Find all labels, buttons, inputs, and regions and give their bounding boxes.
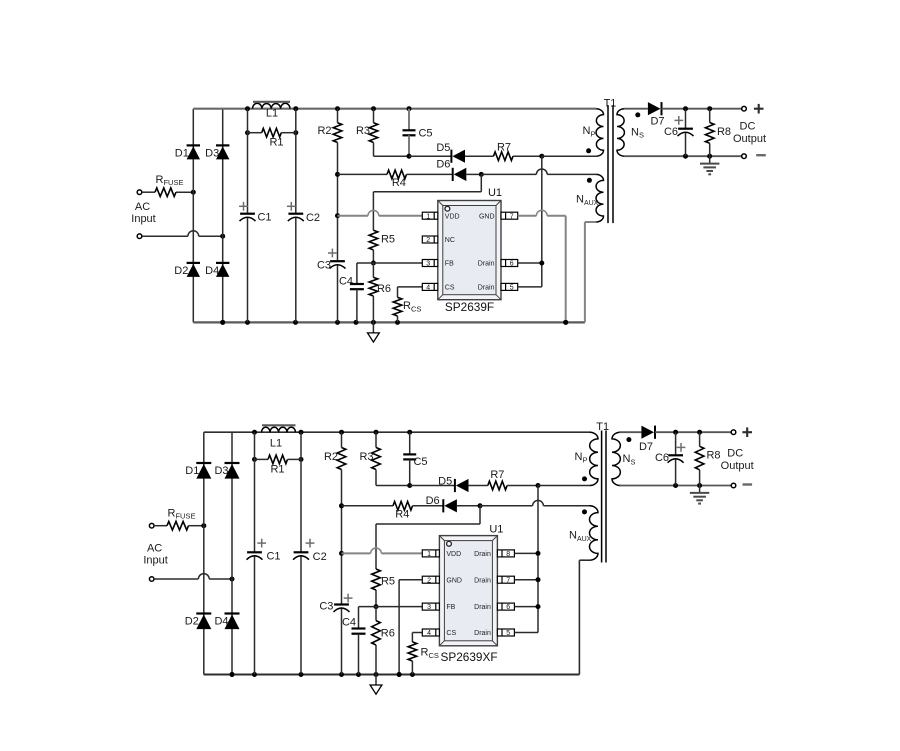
svg-text:1: 1 — [427, 551, 431, 558]
svg-text:R6: R6 — [377, 283, 391, 295]
svg-text:Drain: Drain — [474, 604, 491, 611]
svg-text:8: 8 — [506, 551, 510, 558]
svg-text:Drain: Drain — [474, 551, 491, 558]
svg-text:D4: D4 — [214, 616, 228, 628]
svg-text:R3: R3 — [356, 125, 370, 137]
svg-text:CS: CS — [446, 630, 456, 637]
svg-text:R8: R8 — [717, 126, 731, 138]
svg-text:D3: D3 — [205, 147, 219, 159]
svg-text:U1: U1 — [488, 187, 502, 199]
svg-text:5: 5 — [510, 285, 514, 292]
svg-text:R7: R7 — [490, 469, 504, 481]
svg-text:4: 4 — [427, 630, 431, 637]
svg-text:Drain: Drain — [474, 630, 491, 637]
svg-text:C5: C5 — [418, 128, 432, 140]
svg-text:C4: C4 — [342, 616, 356, 628]
svg-text:AC: AC — [135, 201, 150, 213]
svg-text:3: 3 — [427, 604, 431, 611]
svg-text:R5: R5 — [381, 234, 395, 246]
svg-text:6: 6 — [506, 604, 510, 611]
svg-text:Drain: Drain — [478, 285, 495, 292]
svg-text:R2: R2 — [324, 451, 338, 463]
svg-text:DC: DC — [740, 120, 756, 132]
svg-text:2: 2 — [426, 237, 430, 244]
svg-text:Output: Output — [721, 460, 754, 472]
svg-text:5: 5 — [506, 630, 510, 637]
svg-text:D7: D7 — [639, 441, 653, 453]
svg-text:R5: R5 — [381, 576, 395, 588]
svg-text:R3: R3 — [359, 451, 373, 463]
svg-text:R1: R1 — [269, 136, 283, 148]
svg-text:NC: NC — [445, 237, 455, 244]
svg-text:DC: DC — [727, 447, 743, 459]
svg-text:7: 7 — [506, 577, 510, 584]
svg-text:SP2639F: SP2639F — [445, 300, 494, 314]
svg-text:R2: R2 — [317, 125, 331, 137]
svg-text:1: 1 — [426, 213, 430, 220]
svg-text:D7: D7 — [650, 115, 664, 127]
svg-text:GND: GND — [446, 577, 462, 584]
svg-text:D3: D3 — [214, 465, 228, 477]
svg-text:Input: Input — [143, 555, 167, 567]
svg-text:T1: T1 — [596, 421, 609, 433]
svg-text:R4: R4 — [395, 508, 409, 520]
svg-text:AC: AC — [147, 543, 162, 555]
svg-text:7: 7 — [510, 213, 514, 220]
svg-text:3: 3 — [426, 261, 430, 268]
svg-text:VDD: VDD — [445, 213, 460, 220]
svg-text:C2: C2 — [313, 551, 327, 563]
svg-text:Output: Output — [733, 133, 766, 145]
svg-text:Input: Input — [131, 213, 155, 225]
svg-text:R4: R4 — [392, 177, 406, 189]
svg-text:R7: R7 — [497, 142, 511, 154]
svg-text:GND: GND — [479, 213, 495, 220]
svg-text:C3: C3 — [319, 601, 333, 613]
svg-text:D2: D2 — [185, 616, 199, 628]
svg-text:D6: D6 — [426, 495, 440, 507]
svg-text:U1: U1 — [489, 523, 503, 535]
svg-text:T1: T1 — [604, 97, 617, 109]
svg-text:D4: D4 — [205, 265, 219, 277]
svg-text:CS: CS — [445, 285, 455, 292]
svg-text:D1: D1 — [185, 465, 199, 477]
svg-text:FB: FB — [446, 604, 455, 611]
svg-text:C5: C5 — [413, 456, 427, 468]
svg-text:D5: D5 — [436, 142, 450, 154]
svg-text:C1: C1 — [257, 212, 271, 224]
svg-text:D5: D5 — [438, 476, 452, 488]
svg-text:C2: C2 — [306, 212, 320, 224]
svg-text:C6: C6 — [655, 452, 669, 464]
svg-text:Drain: Drain — [478, 261, 495, 268]
svg-text:L1: L1 — [266, 107, 278, 119]
svg-text:VDD: VDD — [446, 551, 461, 558]
svg-text:R8: R8 — [706, 450, 720, 462]
svg-text:R1: R1 — [270, 463, 284, 475]
svg-text:D6: D6 — [436, 159, 450, 171]
svg-text:C4: C4 — [339, 276, 353, 288]
svg-text:R6: R6 — [381, 628, 395, 640]
svg-text:L1: L1 — [270, 437, 282, 449]
svg-text:D1: D1 — [175, 147, 189, 159]
svg-text:D2: D2 — [174, 265, 188, 277]
svg-text:SP2639XF: SP2639XF — [440, 650, 497, 664]
svg-text:4: 4 — [426, 285, 430, 292]
svg-text:C6: C6 — [664, 126, 678, 138]
svg-text:FB: FB — [445, 261, 454, 268]
svg-text:6: 6 — [510, 261, 514, 268]
svg-text:Drain: Drain — [474, 577, 491, 584]
svg-text:C3: C3 — [317, 260, 331, 272]
svg-text:2: 2 — [427, 577, 431, 584]
svg-text:C1: C1 — [266, 551, 280, 563]
